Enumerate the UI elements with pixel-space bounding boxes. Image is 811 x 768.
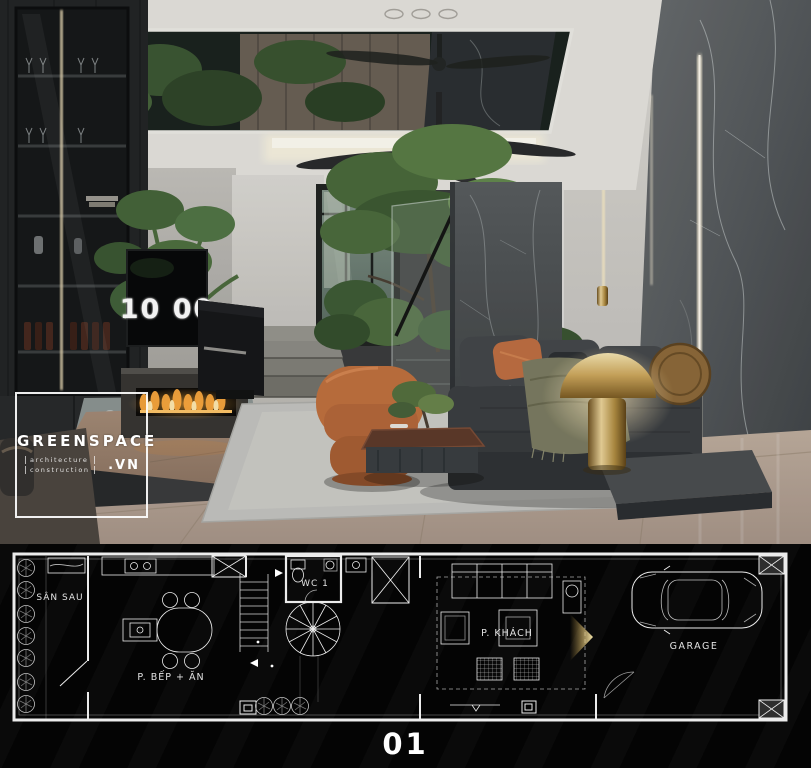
plan-corner-shafts	[759, 556, 784, 718]
plan-kitchen-island	[123, 593, 212, 669]
plan-bench	[48, 558, 85, 573]
label-backyard: SÂN SAU	[36, 591, 83, 603]
plan-bottom-trees	[256, 698, 309, 715]
plan-backyard-trees	[18, 560, 35, 713]
label-garage: GARAGE	[670, 641, 719, 652]
plan-rug-2	[514, 658, 539, 680]
plan-tv-unit	[563, 581, 581, 613]
brand-name: GREENSPACE	[17, 432, 146, 450]
plan-straight-stairs	[240, 574, 268, 652]
tagline-line-2: construction	[25, 466, 95, 474]
brand-tagline: architecture construction	[25, 456, 95, 474]
label-wc: WC 1	[301, 579, 329, 589]
plan-kitchen-counter	[102, 557, 214, 575]
plan-direction-marks	[250, 569, 283, 667]
brand-domain: .VN	[108, 458, 140, 473]
plan-armchair	[441, 612, 469, 644]
plan-spiral-stair	[286, 602, 340, 702]
tagline-line-1: architecture	[25, 456, 95, 464]
plan-void-shaft	[372, 557, 409, 603]
plan-garage-door-swing	[604, 672, 634, 698]
brand-watermark: GREENSPACE architecture construction .VN	[15, 392, 148, 518]
render-photo: 10 00 10 00	[0, 0, 811, 544]
architectural-presentation: 10 00 10 00	[0, 0, 811, 768]
plan-sink-unit	[346, 558, 366, 572]
plan-sofa	[452, 564, 552, 598]
floor-plan-strip: SÂN SAU P. BẾP + ĂN WC 1 P. KHÁCH GARAGE…	[0, 544, 811, 768]
plan-backyard-door	[60, 661, 87, 686]
label-living-room: P. KHÁCH	[481, 627, 533, 639]
plan-threshold-mark	[450, 705, 500, 711]
camera-view-cone	[570, 614, 593, 661]
label-kitchen-dining: P. BẾP + ĂN	[137, 671, 204, 683]
plan-room-labels: SÂN SAU P. BẾP + ĂN WC 1 P. KHÁCH GARAGE	[36, 579, 718, 683]
plan-car	[632, 566, 762, 634]
plan-rug-1	[477, 658, 502, 680]
page-number: 01	[0, 727, 811, 761]
